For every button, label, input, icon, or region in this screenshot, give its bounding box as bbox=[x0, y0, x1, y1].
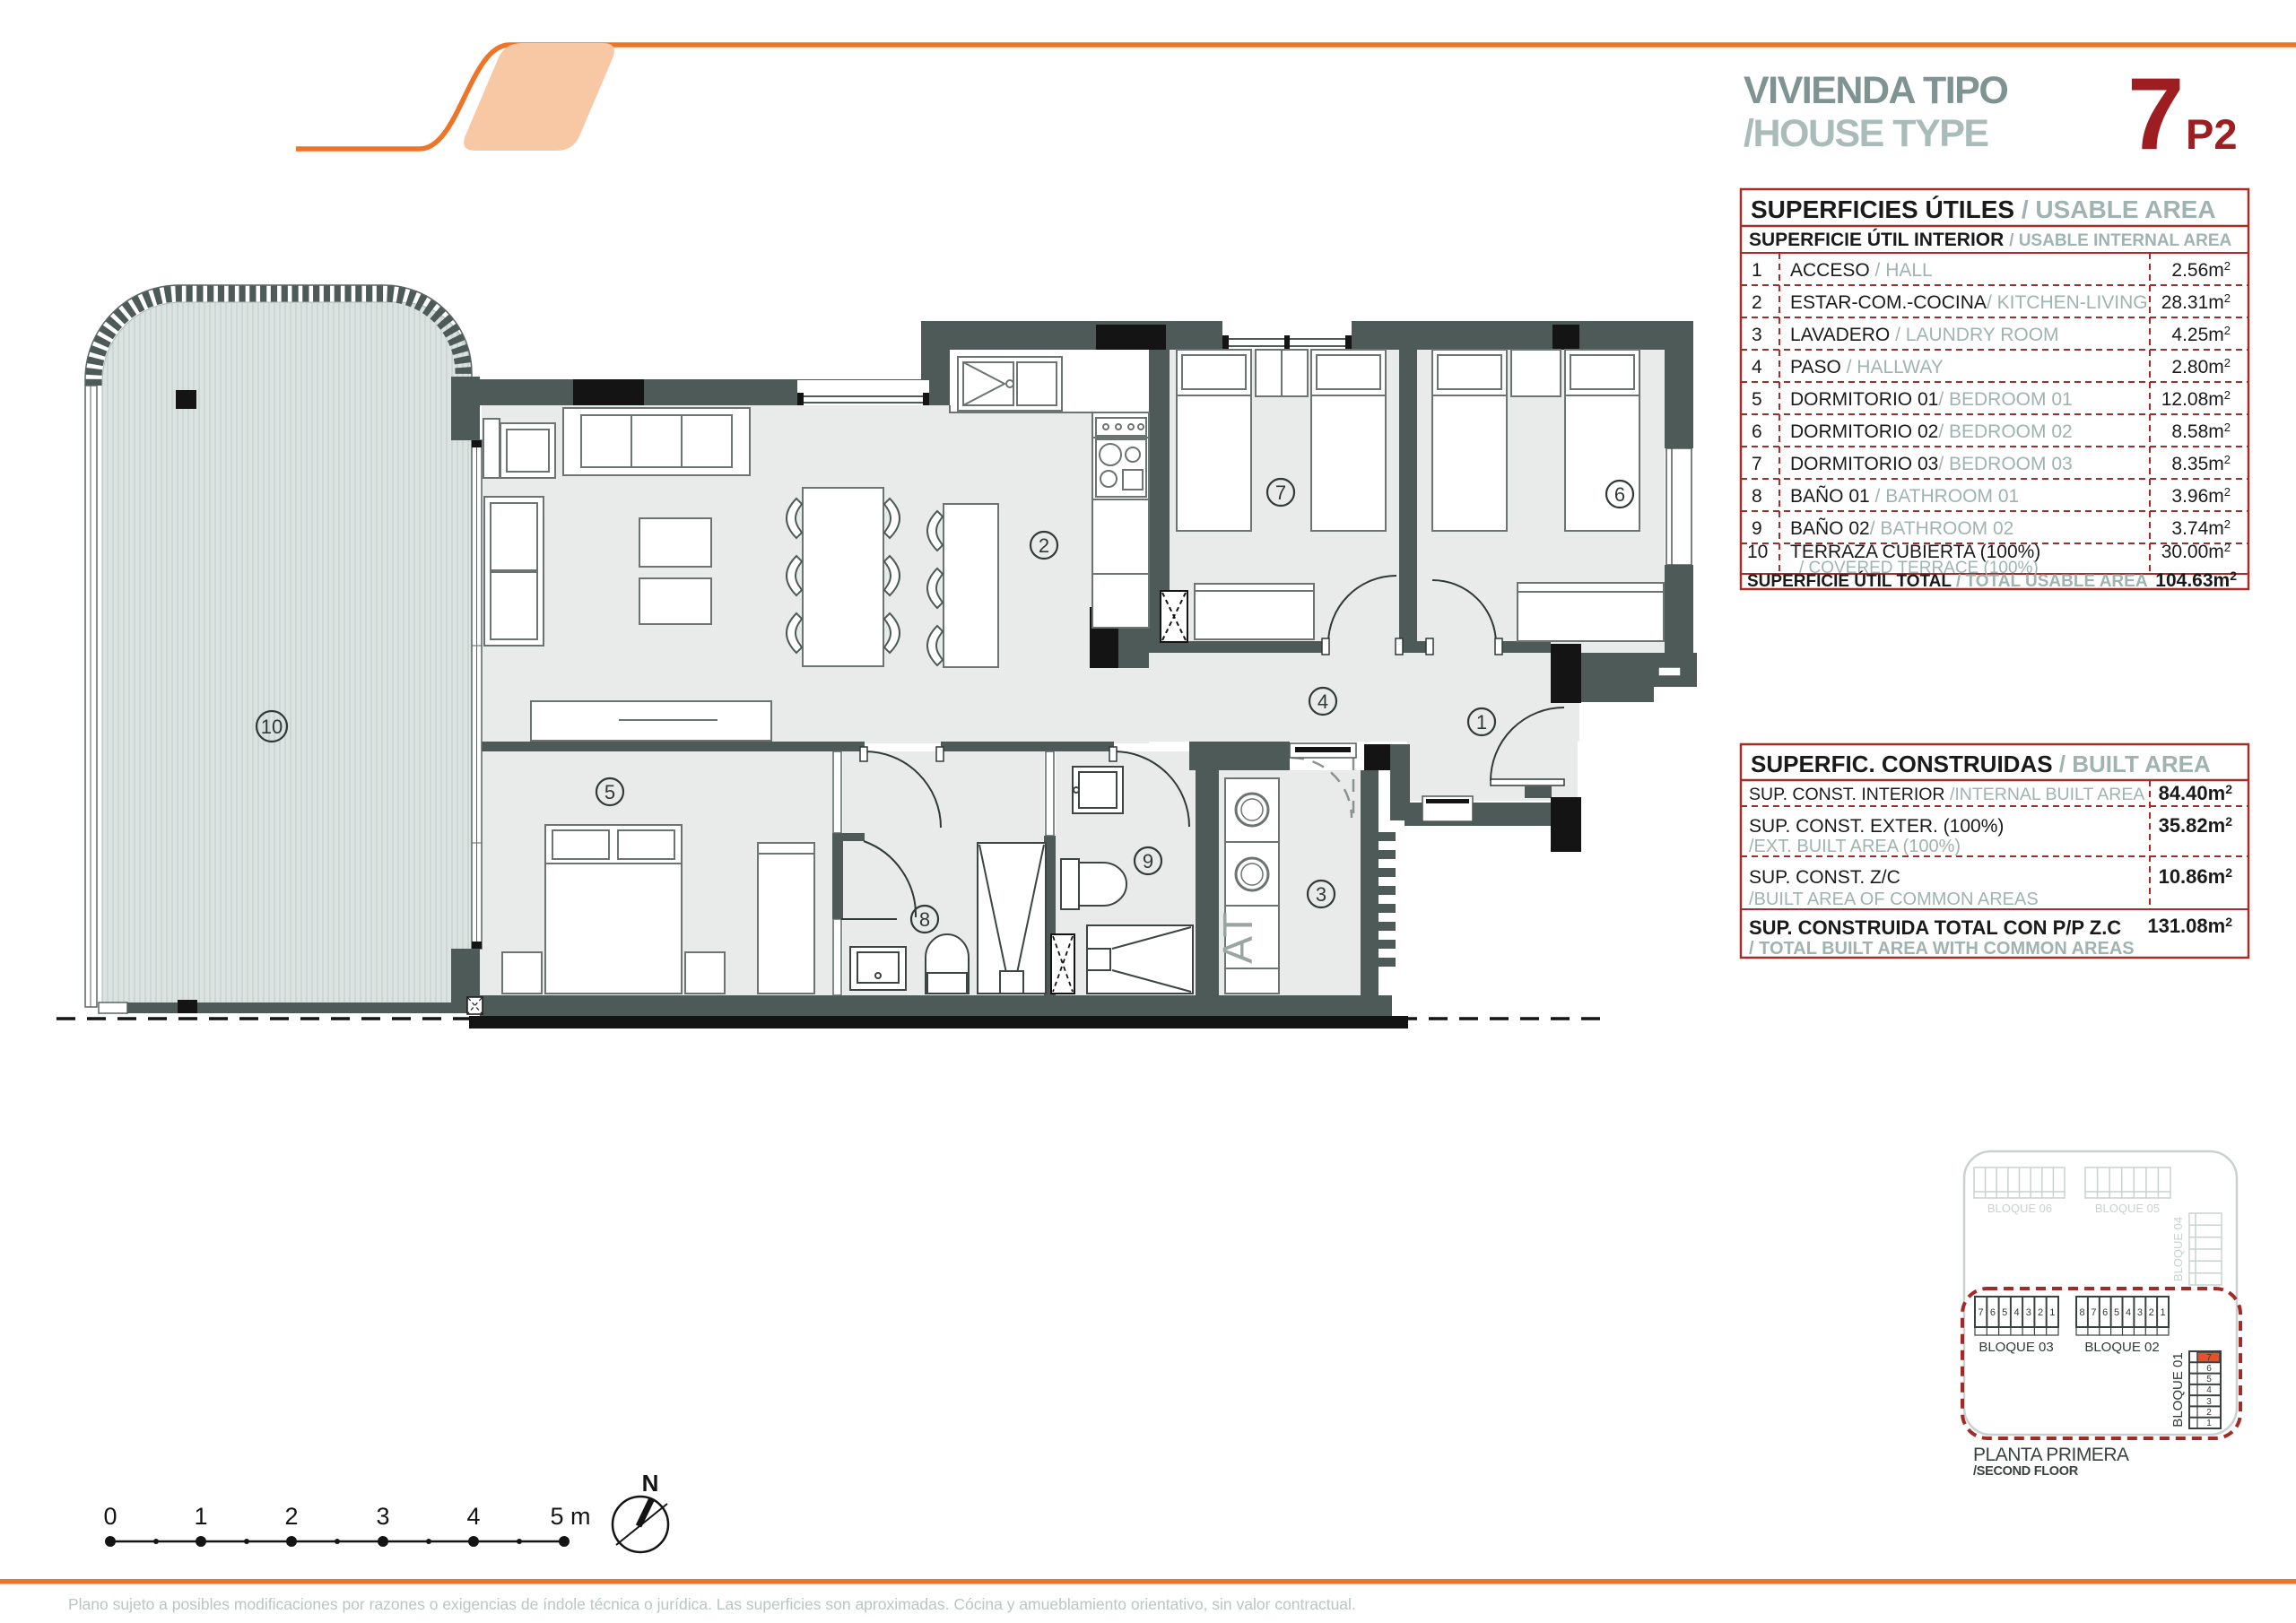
svg-text:3: 3 bbox=[1316, 883, 1326, 906]
svg-text:AT: AT bbox=[1214, 910, 1261, 963]
svg-text:7: 7 bbox=[2091, 1307, 2096, 1318]
svg-text:2: 2 bbox=[2149, 1307, 2154, 1318]
svg-text:8: 8 bbox=[2079, 1307, 2084, 1318]
svg-text:30.00m2: 30.00m2 bbox=[2161, 541, 2231, 562]
svg-text:7: 7 bbox=[2127, 57, 2184, 171]
svg-text:/SECOND FLOOR: /SECOND FLOOR bbox=[1973, 1464, 2079, 1479]
svg-text:3: 3 bbox=[376, 1503, 389, 1530]
svg-text:3: 3 bbox=[2026, 1307, 2031, 1318]
svg-text:BLOQUE 04: BLOQUE 04 bbox=[2171, 1217, 2185, 1281]
svg-text:12.08m2: 12.08m2 bbox=[2161, 388, 2231, 410]
svg-text:1: 1 bbox=[1752, 260, 1762, 281]
svg-text:2: 2 bbox=[2206, 1408, 2212, 1418]
svg-text:3.96m2: 3.96m2 bbox=[2171, 485, 2231, 507]
svg-text:/HOUSE TYPE: /HOUSE TYPE bbox=[1744, 112, 1988, 155]
svg-text:1: 1 bbox=[2206, 1419, 2212, 1428]
svg-text:5 m: 5 m bbox=[550, 1503, 590, 1530]
svg-text:BLOQUE 03: BLOQUE 03 bbox=[1979, 1340, 2053, 1355]
svg-text:3.74m2: 3.74m2 bbox=[2171, 517, 2231, 539]
svg-text:BLOQUE 06: BLOQUE 06 bbox=[1987, 1202, 2052, 1215]
svg-text:84.40m2: 84.40m2 bbox=[2159, 782, 2233, 804]
svg-text:6: 6 bbox=[2102, 1307, 2108, 1318]
svg-text:5: 5 bbox=[2206, 1375, 2212, 1384]
svg-text:4: 4 bbox=[2206, 1385, 2212, 1395]
svg-text:BAÑO 01 / BATHROOM 01: BAÑO 01 / BATHROOM 01 bbox=[1790, 485, 2019, 507]
svg-text:5: 5 bbox=[2002, 1307, 2007, 1318]
svg-text:VIVIENDA TIPO: VIVIENDA TIPO bbox=[1744, 69, 2007, 112]
svg-text:LAVADERO / LAUNDRY ROOM: LAVADERO / LAUNDRY ROOM bbox=[1790, 325, 2059, 345]
svg-text:3: 3 bbox=[1752, 325, 1762, 345]
svg-text:/BUILT AREA OF COMMON AREAS: /BUILT AREA OF COMMON AREAS bbox=[1749, 890, 2039, 909]
svg-text:N: N bbox=[642, 1470, 659, 1497]
svg-text:DORMITORIO 01/ BEDROOM 01: DORMITORIO 01/ BEDROOM 01 bbox=[1790, 389, 2073, 410]
svg-text:131.08m2: 131.08m2 bbox=[2147, 915, 2232, 937]
svg-text:0: 0 bbox=[103, 1503, 117, 1530]
svg-text:1: 1 bbox=[194, 1503, 207, 1530]
svg-text:8: 8 bbox=[1752, 486, 1762, 507]
svg-text:104.63m2: 104.63m2 bbox=[2155, 568, 2237, 591]
svg-text:BLOQUE 01: BLOQUE 01 bbox=[2170, 1352, 2186, 1427]
svg-text:6: 6 bbox=[1990, 1307, 1996, 1318]
svg-text:PASO / HALLWAY: PASO / HALLWAY bbox=[1790, 357, 1944, 378]
svg-text:4.25m2: 4.25m2 bbox=[2171, 324, 2231, 345]
svg-text:SUPERFIC. CONSTRUIDAS / BUILT: SUPERFIC. CONSTRUIDAS / BUILT AREA bbox=[1751, 751, 2211, 777]
svg-text:4: 4 bbox=[2126, 1307, 2131, 1318]
svg-text:ACCESO / HALL: ACCESO / HALL bbox=[1790, 260, 1933, 281]
svg-text:SUPERFICIES ÚTILES / USABLE AR: SUPERFICIES ÚTILES / USABLE AREA bbox=[1751, 195, 2216, 223]
svg-text:1: 1 bbox=[1476, 711, 1487, 733]
svg-text:6: 6 bbox=[2206, 1364, 2212, 1374]
svg-text:SUP. CONST. EXTER. (100%): SUP. CONST. EXTER. (100%) bbox=[1749, 816, 2004, 837]
svg-text:4: 4 bbox=[2013, 1307, 2019, 1318]
svg-text:3: 3 bbox=[2137, 1307, 2143, 1318]
svg-text:10: 10 bbox=[1747, 542, 1768, 562]
svg-text:PLANTA PRIMERA: PLANTA PRIMERA bbox=[1973, 1445, 2129, 1465]
svg-text:1: 1 bbox=[2049, 1307, 2055, 1318]
svg-text:2.56m2: 2.56m2 bbox=[2171, 259, 2231, 281]
svg-text:3: 3 bbox=[2206, 1397, 2212, 1407]
svg-text:8.35m2: 8.35m2 bbox=[2171, 453, 2231, 474]
svg-text:P2: P2 bbox=[2186, 110, 2238, 158]
svg-text:2.80m2: 2.80m2 bbox=[2171, 356, 2231, 378]
svg-text:SUP. CONSTRUIDA TOTAL CON P/P: SUP. CONSTRUIDA TOTAL CON P/P Z.C bbox=[1749, 916, 2121, 939]
svg-text:28.31m2: 28.31m2 bbox=[2161, 291, 2231, 313]
svg-text:7: 7 bbox=[1979, 1307, 1984, 1318]
svg-text:1: 1 bbox=[2161, 1307, 2166, 1318]
svg-text:2: 2 bbox=[284, 1503, 298, 1530]
svg-text:5: 5 bbox=[604, 781, 615, 803]
svg-text:SUPERFICIE ÚTIL INTERIOR / USA: SUPERFICIE ÚTIL INTERIOR / USABLE INTERN… bbox=[1749, 229, 2231, 250]
svg-text:9: 9 bbox=[1752, 518, 1762, 539]
svg-text:9: 9 bbox=[1143, 850, 1153, 872]
svg-text:2: 2 bbox=[1752, 292, 1762, 313]
svg-text:10.86m2: 10.86m2 bbox=[2159, 865, 2233, 888]
svg-text:DORMITORIO 03/ BEDROOM 03: DORMITORIO 03/ BEDROOM 03 bbox=[1790, 454, 2073, 474]
svg-text:10: 10 bbox=[261, 716, 283, 738]
svg-text:4: 4 bbox=[466, 1503, 480, 1530]
svg-text:7: 7 bbox=[2206, 1353, 2212, 1363]
svg-text:2: 2 bbox=[1039, 534, 1049, 557]
svg-text:ESTAR-COM.-COCINA/ KITCHEN-LIV: ESTAR-COM.-COCINA/ KITCHEN-LIVING bbox=[1790, 292, 2148, 313]
svg-text:7: 7 bbox=[1275, 482, 1286, 504]
svg-text:BLOQUE 02: BLOQUE 02 bbox=[2084, 1340, 2159, 1355]
svg-text:/ TOTAL BUILT AREA WITH COMMON: / TOTAL BUILT AREA WITH COMMON AREAS bbox=[1749, 939, 2135, 959]
svg-text:/EXT. BUILT AREA (100%): /EXT. BUILT AREA (100%) bbox=[1749, 837, 1961, 856]
svg-text:5: 5 bbox=[2114, 1307, 2119, 1318]
svg-text:7: 7 bbox=[1752, 454, 1762, 474]
svg-text:BAÑO 02/ BATHROOM 02: BAÑO 02/ BATHROOM 02 bbox=[1790, 517, 2013, 539]
svg-text:BLOQUE 05: BLOQUE 05 bbox=[2095, 1202, 2160, 1215]
svg-text:8.58m2: 8.58m2 bbox=[2171, 421, 2231, 442]
svg-text:SUP. CONST. INTERIOR /INTERNAL: SUP. CONST. INTERIOR /INTERNAL BUILT ARE… bbox=[1749, 785, 2144, 804]
svg-text:SUPERFICIE ÚTIL TOTAL / TOTAL: SUPERFICIE ÚTIL TOTAL / TOTAL USABLE ARE… bbox=[1747, 571, 2148, 591]
svg-text:DORMITORIO 02/ BEDROOM 02: DORMITORIO 02/ BEDROOM 02 bbox=[1790, 421, 2073, 442]
svg-text:4: 4 bbox=[1752, 357, 1762, 378]
svg-text:Plano sujeto a posibles modifi: Plano sujeto a posibles modificaciones p… bbox=[68, 1595, 1356, 1613]
svg-text:6: 6 bbox=[1752, 421, 1762, 442]
svg-text:SUP. CONST. Z/C: SUP. CONST. Z/C bbox=[1749, 867, 1900, 888]
svg-text:4: 4 bbox=[1318, 690, 1328, 713]
svg-text:8: 8 bbox=[919, 908, 930, 931]
svg-text:35.82m2: 35.82m2 bbox=[2159, 814, 2233, 837]
svg-text:6: 6 bbox=[1614, 483, 1625, 506]
svg-text:2: 2 bbox=[2038, 1307, 2043, 1318]
svg-text:5: 5 bbox=[1752, 389, 1762, 410]
